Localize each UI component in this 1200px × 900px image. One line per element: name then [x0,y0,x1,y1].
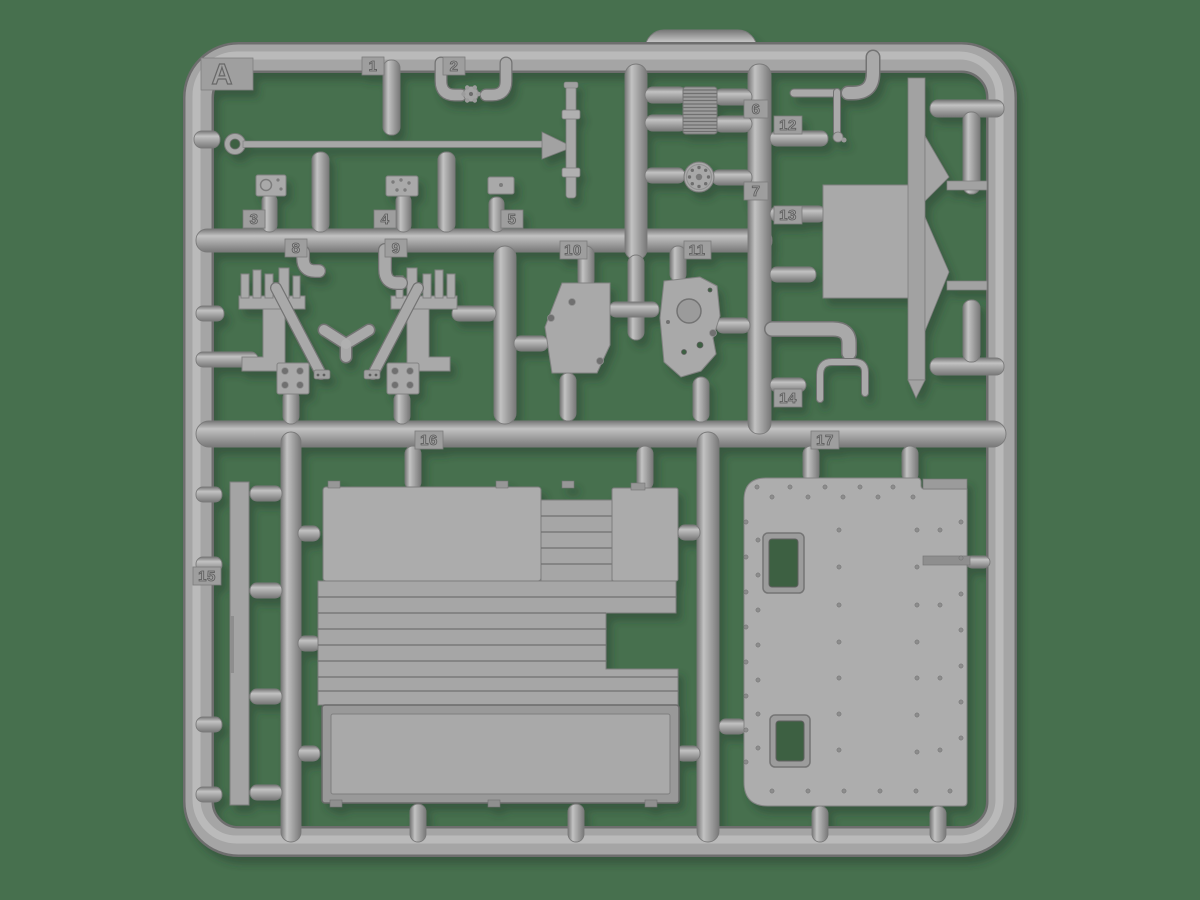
rivet [744,555,748,559]
part-14-handle [820,362,865,399]
part-label-14: 14 [774,389,802,407]
rivet [744,590,748,594]
sprue-letter-tab: A [201,58,253,91]
rivet [756,712,760,716]
rivet [911,495,915,499]
svg-text:6: 6 [752,101,761,118]
rivet [744,694,748,698]
rivet [770,789,774,793]
rivet [756,678,760,682]
svg-text:2: 2 [450,58,459,75]
part-4-plate [386,176,418,196]
part-label-7: 7 [744,182,768,200]
model-kit-sprue-render: A [0,0,1200,900]
rivet [915,528,919,532]
part-6-spring [683,87,717,134]
rivet [756,608,760,612]
rivet [756,643,760,647]
part-5-plate [488,177,514,194]
part-label-4: 4 [374,210,396,228]
rivet [744,520,748,524]
svg-text:16: 16 [420,432,438,449]
rivet [756,538,760,542]
part-label-16: 16 [415,431,443,449]
rivet [837,748,841,752]
part-11-plate [660,277,720,377]
part-10-plate [545,283,610,373]
rivet [938,603,942,607]
part-label-13: 13 [774,206,802,224]
rivet [788,485,792,489]
svg-text:12: 12 [779,117,797,134]
rivet [959,664,963,668]
part-label-10: 10 [560,241,587,259]
rivet [914,789,918,793]
svg-text:5: 5 [508,211,517,228]
svg-text:11: 11 [689,242,706,259]
rivet [770,495,774,499]
svg-text:13: 13 [779,207,797,224]
rivet [915,640,919,644]
rivet [837,676,841,680]
svg-text:10: 10 [564,242,582,259]
part-label-12: 12 [774,116,802,134]
rivet [837,640,841,644]
part-label-8: 8 [285,239,307,257]
rivet [938,748,942,752]
rivet [842,789,846,793]
part-label-2: 2 [443,57,465,75]
part-7-hub [684,162,714,192]
rivet [915,565,919,569]
rivet [837,712,841,716]
svg-text:15: 15 [198,568,216,585]
svg-text:9: 9 [392,240,401,257]
rivet [938,676,942,680]
rivet [938,528,942,532]
y-link-part [324,330,369,357]
rivet [915,750,919,754]
rivet [915,713,919,717]
rivet [959,700,963,704]
rivet [959,556,963,560]
sprue-canvas: A [0,0,1200,900]
rivet [837,528,841,532]
svg-text:17: 17 [816,432,834,449]
rivet [915,676,919,680]
svg-text:7: 7 [752,183,761,200]
part-label-1: 1 [362,57,384,75]
rivet [756,746,760,750]
part-17-door-panel [744,478,970,806]
svg-text:1: 1 [369,58,378,75]
part-label-11: 11 [684,241,711,259]
rivet [959,736,963,740]
part-9-assembly [364,268,457,394]
rivet [841,495,845,499]
rivet [744,660,748,664]
part-8-assembly [239,268,330,394]
rivet [959,592,963,596]
rivet [823,485,827,489]
rivet [959,628,963,632]
svg-text:3: 3 [250,211,259,228]
part-label-5: 5 [501,210,523,228]
rivet [744,625,748,629]
rivet [756,573,760,577]
rivet [806,789,810,793]
sprue-a: A [193,30,1006,842]
part-16-bed-panel [318,481,679,807]
rivet [948,789,952,793]
part-label-17: 17 [811,431,839,449]
rivet [858,485,862,489]
panel-window-upper [763,533,804,593]
part-15-strip [230,482,249,805]
rivet [744,728,748,732]
part-label-9: 9 [385,239,407,257]
svg-text:14: 14 [779,390,797,407]
rivet [837,603,841,607]
rivet [755,485,759,489]
part-label-15: 15 [193,567,221,585]
part-label-3: 3 [243,210,265,228]
rivet [876,495,880,499]
sprue-letter: A [212,59,233,91]
rivet [959,520,963,524]
svg-text:8: 8 [292,240,301,257]
rivet [878,789,882,793]
panel-window-lower [770,715,810,767]
part-3-plate [256,175,286,196]
rivet [837,565,841,569]
rivet [806,495,810,499]
j-pipe [772,329,849,353]
rivet [891,485,895,489]
part-1-tube [383,60,400,135]
part-label-6: 6 [744,100,768,118]
rivet [915,603,919,607]
rivet [744,760,748,764]
svg-text:4: 4 [381,211,390,228]
